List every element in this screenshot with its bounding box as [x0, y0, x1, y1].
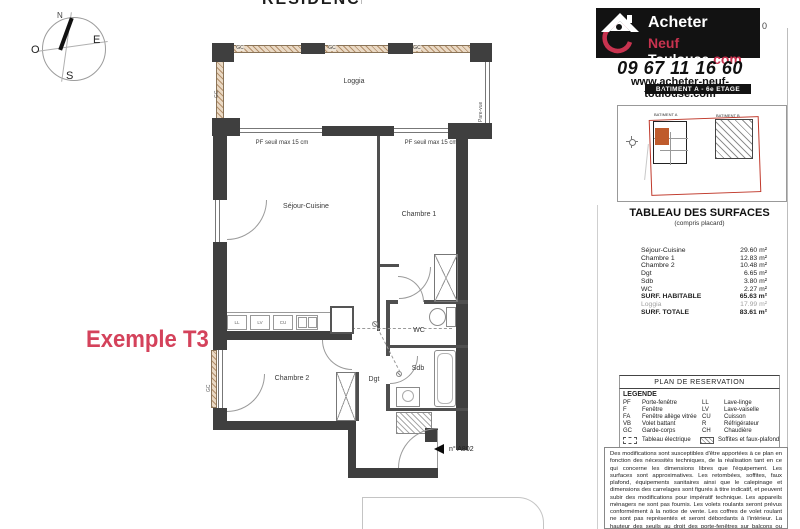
reservation-title: PLAN DE RESERVATION [654, 379, 744, 386]
row-value: 12.83 m² [740, 255, 767, 263]
window [240, 128, 324, 133]
legend-abbr: FA [623, 414, 642, 421]
legend-abbr: R [702, 421, 724, 428]
legend-label: Fenêtre allège vitrée [642, 414, 702, 421]
pare-vue-screen [485, 62, 490, 123]
legend-abbr: LL [702, 400, 724, 407]
legend-label: Lave-vaiselle [724, 407, 778, 414]
closet [434, 254, 458, 302]
kitchen-cu-label: CU [280, 320, 287, 325]
row-label: WC [641, 286, 652, 294]
partition-wall [390, 345, 468, 348]
toilet-bowl [429, 308, 446, 326]
legend-label: Cuisson [724, 414, 778, 421]
row-label: Sdb [641, 278, 653, 286]
disclaimer-box: Des modifications sont susceptibles d'êt… [604, 447, 788, 529]
reservation-box: PLAN DE RESERVATION [619, 375, 780, 389]
unit-number-label: n° A802 [449, 446, 474, 453]
toilet-tank [446, 307, 456, 327]
building-a-plan [653, 121, 687, 164]
row-value: 6.65 m² [744, 270, 767, 278]
table-row: Dgt6.65 m² [641, 270, 767, 278]
kitchen-cooktop-box: CU [273, 315, 293, 330]
partition-wall [377, 136, 380, 331]
legend-label: Lave-linge [724, 400, 778, 407]
row-value: 10.48 m² [740, 262, 767, 270]
legend-soffits-label: Soffites et faux-plafond [718, 437, 779, 443]
kitchen-washer-box: LL [227, 315, 247, 330]
floor-plan-page: N E O S RESIDENCE GC GC GC GC Loggia Par… [0, 0, 800, 529]
row-label: SURF. TOTALE [641, 309, 689, 317]
sidebar-left-border [597, 205, 598, 529]
wall [212, 43, 234, 62]
chambre2-label: Chambre 2 [275, 375, 310, 382]
legend-title: LEGENDE [623, 391, 657, 398]
gc-label: GC [413, 45, 421, 51]
soffit-hatch-icon [700, 437, 714, 444]
door-arc [227, 200, 267, 240]
entry-arrow-icon [434, 444, 444, 454]
compass-west-label: O [31, 44, 40, 56]
partition-wall [386, 408, 468, 411]
legend-label: Fenêtre [642, 407, 702, 414]
legend-abbr: CU [702, 414, 724, 421]
compass: N E O S [20, 0, 130, 100]
row-value: 2.27 m² [744, 286, 767, 294]
row-label: Dgt [641, 270, 652, 278]
cropped-plan-title: RESIDENCE [262, 0, 362, 13]
duct-symbol-icon [396, 371, 402, 377]
mini-compass-icon [626, 136, 638, 148]
closet [336, 372, 356, 421]
row-value: 29.60 m² [740, 247, 767, 255]
legend-label: Volet battant [642, 421, 702, 428]
railing-hatch [211, 350, 217, 408]
table-row-totale: SURF. TOTALE83.61 m² [641, 309, 767, 317]
row-value: 3.80 m² [744, 278, 767, 286]
legend-label: Réfrigérateur [724, 421, 778, 428]
adjacent-unit-outline [362, 497, 544, 529]
highlighted-unit [655, 128, 669, 145]
wall [348, 468, 438, 478]
table-row: Chambre 112.83 m² [641, 255, 767, 263]
example-type-label: Exemple T3 [86, 326, 209, 354]
website-link[interactable]: www.acheter-neuf-toulouse.com [596, 76, 764, 100]
door-arc [322, 340, 352, 370]
wall [212, 118, 240, 136]
wc-label: WC [413, 327, 425, 334]
legend-label: Chaudière [724, 428, 778, 435]
compass-north-label: N [57, 11, 63, 20]
table-row: Sdb3.80 m² [641, 278, 767, 286]
chambre1-label: Chambre 1 [402, 211, 437, 218]
partition-wall [356, 372, 359, 421]
kitchen-lv-label: LV [257, 320, 262, 325]
wall [448, 123, 492, 139]
wall [301, 43, 325, 54]
legend-abbr: CH [702, 428, 724, 435]
legend-grid: PFPorte-fenêtreLLLave-linge FFenêtreLVLa… [623, 400, 778, 435]
kitchen-dishwasher-box: LV [250, 315, 270, 330]
partition-wall [386, 384, 390, 411]
table-row: Chambre 210.48 m² [641, 262, 767, 270]
batiment-b-label: BATIMENT B [716, 113, 740, 118]
pf-threshold-label: PF seuil max 15 cm [256, 140, 309, 146]
sejour-label: Séjour-Cuisine [283, 203, 329, 210]
legend-electrical-label: Tableau électrique [642, 437, 691, 443]
house-logo-icon [600, 10, 644, 56]
gc-label-vertical: GC [206, 385, 212, 393]
agency-logo: Acheter Neuf Toulouse.com [596, 8, 760, 58]
entry-door-arc [398, 428, 438, 468]
bathtub-inner [437, 353, 453, 404]
row-value: 17.99 m² [740, 301, 767, 309]
kitchen-sink-box [296, 315, 318, 330]
logo-line1: Acheter [648, 14, 708, 32]
row-label: SURF. HABITABLE [641, 293, 701, 301]
site-plan-box: BATIMENT A BATIMENT B [617, 105, 787, 202]
row-label: Chambre 2 [641, 262, 675, 270]
legend-label: Porte-fenêtre [642, 400, 702, 407]
disclaimer-text: Des modifications sont susceptibles d'êt… [610, 451, 782, 529]
legend-abbr: GC [623, 428, 642, 435]
legend-abbr: F [623, 407, 642, 414]
row-label: Loggia [641, 301, 661, 309]
compass-east-label: E [93, 34, 100, 46]
loggia-label: Loggia [343, 78, 364, 85]
window [218, 350, 223, 408]
legend-abbr: VB [623, 421, 642, 428]
surfaces-title: TABLEAU DES SURFACES [619, 207, 780, 219]
bathroom-sink-basin [402, 390, 414, 402]
table-row-loggia: Loggia17.99 m² [641, 301, 767, 309]
legend-abbr: PF [623, 400, 642, 407]
wall [322, 126, 394, 136]
sdb-label: Sdb [412, 365, 424, 372]
surfaces-table: Séjour-Cuisine29.60 m² Chambre 112.83 m²… [641, 247, 767, 316]
kitchen-ll-label: LL [234, 320, 239, 325]
logo-neuf: Neuf [648, 35, 679, 51]
window [215, 200, 220, 242]
gc-label: GC [236, 45, 244, 51]
electrical-panel-icon [623, 437, 637, 444]
row-label: Séjour-Cuisine [641, 247, 686, 255]
stray-digit: 0 [762, 21, 767, 31]
legend-abbr: LV [702, 407, 724, 414]
duct-symbol-icon [372, 321, 378, 327]
surfaces-subtitle: (compris placard) [619, 220, 780, 227]
pf-threshold-label: PF seuil max 15 cm [405, 140, 458, 146]
row-label: Chambre 1 [641, 255, 675, 263]
legend-label: Garde-corps [642, 428, 702, 435]
wall [388, 43, 413, 54]
wall [213, 421, 352, 430]
building-b-plan [715, 119, 753, 159]
table-row: WC2.27 m² [641, 286, 767, 294]
row-value: 65.63 m² [740, 293, 767, 301]
table-row-habitable: SURF. HABITABLE65.63 m² [641, 293, 767, 301]
street-line [644, 144, 649, 180]
fridge-cabinet [330, 306, 354, 334]
soffit-dashed-line [352, 328, 452, 329]
compass-south-label: S [66, 70, 73, 82]
door-arc [227, 374, 265, 412]
wall [470, 43, 492, 62]
dgt-label: Dgt [369, 376, 380, 383]
partition-wall [377, 264, 399, 267]
window [394, 128, 448, 133]
pare-vue-label: Pare-vue [478, 102, 484, 122]
row-value: 83.61 m² [740, 309, 767, 317]
batiment-a-label: BATIMENT A [654, 112, 677, 117]
gc-label-vertical: GC [214, 91, 220, 99]
wall [213, 136, 227, 200]
loggia-railing-top [212, 45, 492, 53]
gc-label: GC [328, 45, 336, 51]
table-row: Séjour-Cuisine29.60 m² [641, 247, 767, 255]
